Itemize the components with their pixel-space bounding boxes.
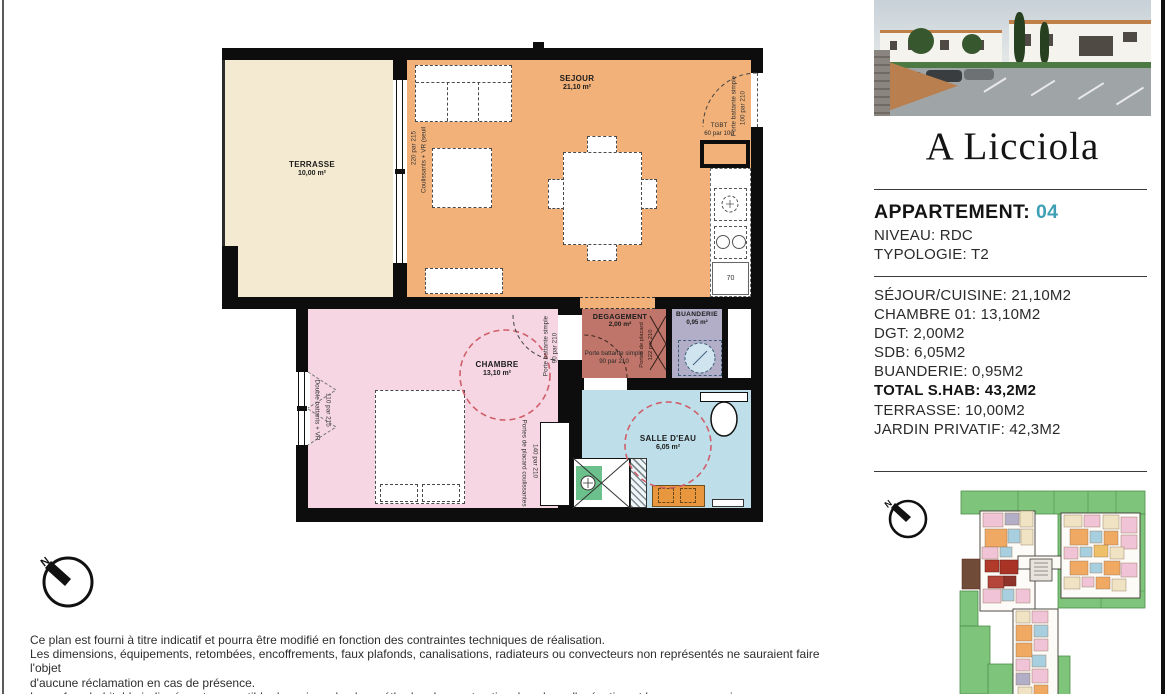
total-area-line: TOTAL S.HAB: 43,2M2 [874,382,1036,399]
cypress-tree [1014,12,1025,64]
divider [874,471,1147,472]
exterior-line: TERRASSE: 10,00M2 [874,402,1025,419]
car [964,69,994,80]
disclaimer-line: La surface habitable indiquée est suscep… [30,690,840,694]
minimap-compass: N [884,494,932,542]
page-border-left [2,0,4,694]
area-line: CHAMBRE 01: 13,10M2 [874,306,1040,323]
label-degagement: DEGAGEMENT2,00 m² [574,312,666,329]
cypress-tree [1040,22,1049,64]
exterior-line: JARDIN PRIVATIF: 42,3M2 [874,421,1061,438]
apartment-number: 04 [1036,201,1059,223]
typologie-line: TYPOLOGIE: T2 [874,246,989,263]
disclaimer-line: d'aucune réclamation en cas de présence. [30,676,840,690]
disclaimer-line: Les dimensions, équipements, retombées, … [30,647,840,675]
project-photo [874,0,1151,116]
dgt-placard-dim: 122 par 210 [648,330,654,361]
placard-label: Portes de placard coulissantes [521,419,528,506]
site-plan [958,481,1150,694]
sliding-door-label: Coulissants + VR (seuil [421,127,428,193]
north-compass: N [38,550,98,610]
window-swing [308,372,336,445]
chambre-door-label: Porte battante simple [543,316,550,376]
label-terrasse: TERRASSE10,00 m² [260,160,364,179]
area-line: BUANDERIE: 0,95M2 [874,363,1023,380]
apartment-title-label: APPARTEMENT: [874,201,1030,223]
placard-dim: 140 par 210 [532,444,539,478]
entry-door-dim: 100 par 210 [740,91,747,125]
chambre-window-dim: 110 par 215 [325,393,332,427]
area-line: SDB: 6,05M2 [874,344,965,361]
sliding-door-dim: 220 par 215 [411,131,418,165]
tree [962,34,982,54]
compass-needle [891,503,911,522]
dgt-placard-label: Portes de placard [639,322,645,367]
area-line: SÉJOUR/CUISINE: 21,10M2 [874,287,1071,304]
divider [874,189,1147,190]
chambre-door-dim: 90 par 210 [552,333,559,364]
site-stair-core [1030,559,1052,581]
burner-icon [733,236,746,249]
floor-plan: TGBT60 par 100 70 [222,48,763,524]
label-chambre: CHAMBRE13,10 m² [447,360,547,379]
tree [908,28,934,54]
entry-door-label: Porte battante simple [731,76,738,136]
toilet-icon [711,402,737,436]
disclaimer-line: Ce plan est fourni à titre indicatif et … [30,633,840,647]
niveau-line: NIVEAU: RDC [874,227,973,244]
label-salle-deau: SALLE D'EAU6,05 m² [620,434,716,453]
stone-wall [874,50,890,116]
page-border-right [1161,0,1165,694]
chambre-window-label: Double battants + VR [314,380,321,441]
disclaimer: Ce plan est fourni à titre indicatif et … [30,633,840,694]
label-buanderie: BUANDERIE0,95 m² [659,311,735,327]
area-line: DGT: 2,00M2 [874,325,965,342]
apartment-title: APPARTEMENT: 04 [874,201,1058,224]
label-sejour: SEJOUR21,10 m² [527,74,627,93]
burner-icon [717,236,730,249]
divider [874,276,1147,277]
project-logo: A Licciola [874,124,1151,169]
